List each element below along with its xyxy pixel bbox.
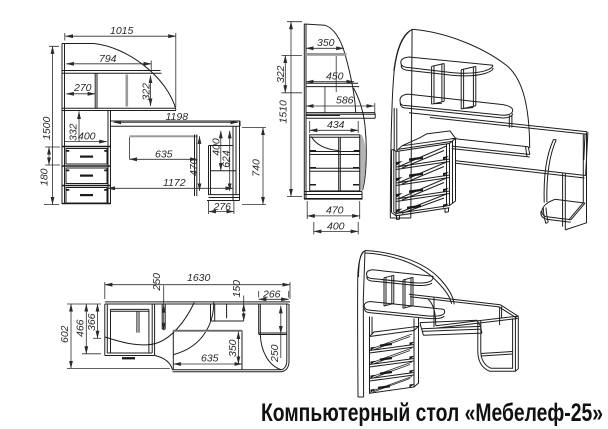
svg-text:1198: 1198 <box>166 111 189 123</box>
svg-text:350: 350 <box>317 37 335 49</box>
svg-text:322: 322 <box>141 83 153 101</box>
svg-text:635: 635 <box>201 353 219 365</box>
svg-text:602: 602 <box>59 325 71 343</box>
svg-text:434: 434 <box>327 119 345 131</box>
svg-text:1630: 1630 <box>187 272 211 284</box>
svg-text:470: 470 <box>188 158 200 176</box>
svg-text:466: 466 <box>75 319 87 337</box>
svg-text:740: 740 <box>250 159 262 177</box>
svg-text:1510: 1510 <box>278 100 290 124</box>
svg-text:1172: 1172 <box>163 177 186 189</box>
svg-text:266: 266 <box>262 289 281 301</box>
svg-text:366: 366 <box>86 313 98 331</box>
svg-text:586: 586 <box>336 95 354 107</box>
svg-text:400: 400 <box>78 131 96 143</box>
svg-text:250: 250 <box>269 344 281 363</box>
svg-text:180: 180 <box>39 168 51 186</box>
svg-text:794: 794 <box>99 53 117 65</box>
svg-text:470: 470 <box>326 205 344 217</box>
svg-text:270: 270 <box>73 82 92 94</box>
svg-text:624: 624 <box>220 150 232 168</box>
svg-text:1500: 1500 <box>41 116 53 140</box>
svg-text:276: 276 <box>213 201 232 213</box>
svg-text:322: 322 <box>275 65 287 83</box>
svg-text:400: 400 <box>327 221 345 233</box>
svg-text:350: 350 <box>227 339 239 357</box>
svg-text:250: 250 <box>151 273 163 292</box>
svg-text:450: 450 <box>326 71 344 83</box>
svg-text:150: 150 <box>231 280 243 298</box>
svg-text:635: 635 <box>155 149 173 161</box>
svg-text:Компьютерный стол «Мебелеф-25»: Компьютерный стол «Мебелеф-25» <box>261 399 603 427</box>
svg-text:1015: 1015 <box>110 25 134 37</box>
